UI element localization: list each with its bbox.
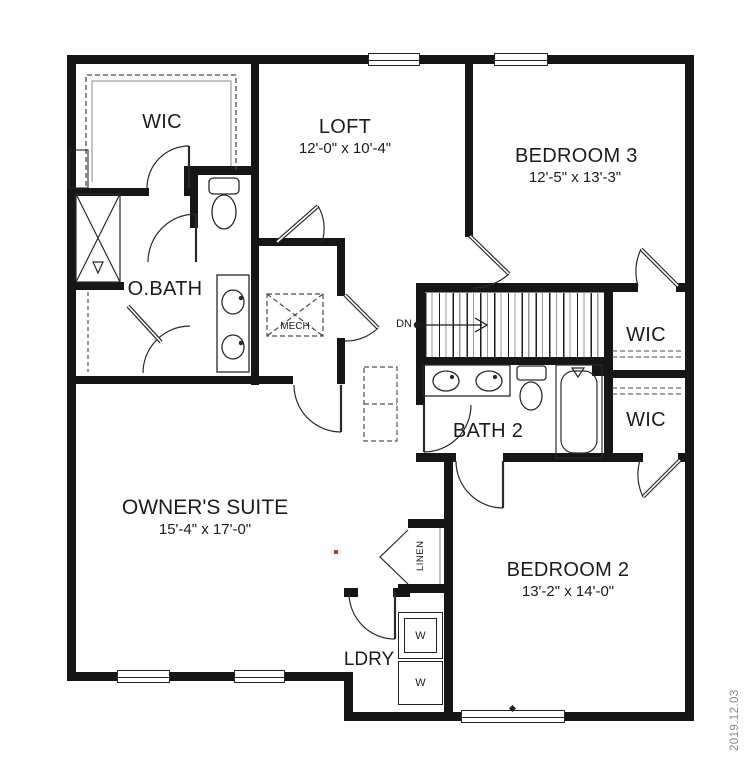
bath2-double-vanity-icon	[423, 365, 510, 396]
red-dot-mark	[334, 550, 338, 554]
door-leaf-wic2	[643, 460, 680, 497]
wall-wic-bottom	[67, 188, 149, 196]
door-arc-loft	[318, 206, 324, 242]
wall-wic-divider	[604, 370, 685, 378]
washer-dryer-top-unit: W	[398, 612, 443, 659]
door-arc-laundry	[349, 593, 395, 639]
window-owners-suite-2	[234, 670, 285, 683]
shower-icon	[76, 194, 120, 282]
wall-toilet-nook-left	[190, 166, 198, 228]
bath2-toilet-icon	[517, 366, 546, 410]
door-arc-owners-suite	[294, 385, 341, 432]
wall-obath-bottom	[67, 376, 293, 384]
door-arc-wic2	[638, 460, 643, 497]
window-top-1	[368, 53, 420, 66]
door-leaf-mech	[345, 295, 378, 328]
door-leaf-wic1-core	[641, 249, 678, 286]
wall-owners-suite-bottom	[67, 672, 353, 681]
wall-laundry-top-left	[344, 588, 358, 597]
wall-loft-bedroom3-divider	[465, 55, 473, 237]
label-lin-closet: LIN.	[68, 149, 85, 189]
label-loft: LOFT	[295, 116, 395, 138]
wall-wic-loft-divider	[251, 55, 259, 385]
door-arc-wic-owner	[147, 146, 189, 188]
label-owners-suite: OWNER'S SUITE	[95, 496, 315, 519]
wall-right	[685, 55, 694, 721]
door-arc-bedroom2	[456, 461, 503, 508]
label-obath: O.BATH	[106, 278, 224, 300]
wall-bath2-top	[416, 357, 606, 365]
bathtub-icon	[556, 365, 602, 458]
label-wic-owner: WIC	[117, 111, 207, 133]
toilet-icon	[209, 178, 239, 229]
door-bifold-linen	[380, 530, 408, 584]
washer-top-label: W	[415, 630, 425, 642]
door-arc-obath-entry	[143, 326, 190, 373]
door-leaf-shower-core	[128, 306, 161, 342]
wall-laundry-top-right	[393, 588, 410, 597]
window-owners-suite-1	[117, 670, 170, 683]
label-laundry: LDRY	[338, 650, 400, 671]
floor-plan: W W	[0, 0, 755, 768]
label-bedroom3: BEDROOM 3	[515, 145, 635, 167]
label-wic-lower: WIC	[606, 409, 686, 431]
label-wic-upper: WIC	[606, 324, 686, 346]
wall-bedroom2-top-right	[503, 453, 643, 462]
label-bath2: BATH 2	[428, 420, 548, 442]
label-bedroom2-dims: 13'-2" x 14'-0"	[488, 584, 648, 601]
door-arc-wic1	[636, 249, 641, 286]
wall-mech-top	[256, 238, 345, 246]
stacked-washer-icon: W	[404, 618, 437, 653]
wall-bath2-left	[416, 283, 425, 405]
door-arc-mech	[345, 328, 378, 341]
label-owners-suite-dims: 15'-4" x 17'-0"	[95, 522, 315, 539]
wall-stairs-top-right	[676, 283, 685, 292]
label-mech: MECH	[270, 321, 320, 332]
label-bedroom2: BEDROOM 2	[488, 559, 648, 581]
wall-owners-door-hinge	[337, 338, 345, 384]
door-leaf-shower	[128, 306, 161, 342]
wall-toilet-nook-top	[190, 166, 258, 175]
label-linen: LINEN	[416, 526, 433, 586]
window-top-2	[494, 53, 548, 66]
washer-bottom-label: W	[415, 677, 425, 689]
door-leaf-loft	[277, 206, 318, 242]
staircase	[425, 292, 604, 357]
window-bedroom2	[461, 710, 565, 723]
wall-wic2-bottom-right	[678, 453, 685, 462]
door-leaf-bedroom3	[470, 236, 509, 274]
wall-mech-right	[337, 238, 345, 296]
door-leaf-bedroom3-core	[470, 236, 509, 274]
date-stamp: 2019.12.03	[729, 674, 749, 766]
label-loft-dims: 12'-0" x 10'-4"	[285, 141, 405, 158]
door-leaf-loft-core	[277, 206, 318, 242]
door-leaf-wic1	[641, 249, 678, 286]
label-dn: DN	[384, 318, 412, 330]
door-leaf-wic2-core	[643, 460, 680, 497]
label-bedroom3-dims: 12'-5" x 13'-3"	[515, 170, 635, 187]
door-arc-toilet-nook	[148, 214, 196, 262]
door-leaf-mech-core	[345, 295, 378, 328]
washer-bottom-unit: W	[398, 661, 443, 705]
hall-dashed-box	[364, 367, 397, 441]
